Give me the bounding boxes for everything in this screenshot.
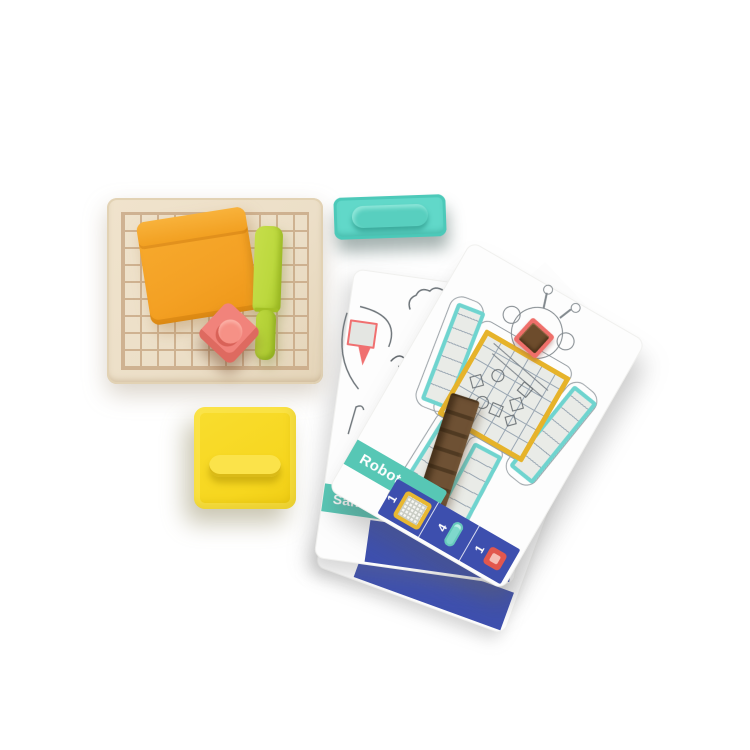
flag-sketch: [347, 319, 378, 349]
cell-shape-diamond: [509, 397, 524, 412]
cell-shape-circle: [489, 367, 507, 385]
teal-bar-stamp: [333, 194, 446, 240]
stamp-knob: [213, 315, 247, 349]
cell-shape-square: [488, 402, 504, 418]
antenna-line-icon: [543, 293, 548, 309]
piece-count: 1: [472, 543, 487, 556]
teal-capsule-stamp-icon: [443, 520, 466, 548]
orange-scraper-tool: [136, 206, 261, 326]
antenna-line-icon: [559, 309, 571, 319]
cell-shape-diamond: [469, 374, 484, 389]
cell-shape-diamond: [505, 414, 517, 426]
piece-count: 1: [385, 493, 400, 506]
piece-count: 4: [434, 521, 449, 534]
teal-stamp-bar-handle: [352, 204, 429, 229]
yellow-square-stamp: [194, 407, 296, 509]
antenna-ball-icon: [569, 301, 583, 315]
yellow-stamp-bar-handle: [209, 455, 281, 477]
cell-shape-square: [517, 381, 534, 398]
sand-play-kit-product-photo: W Sand Castle: [0, 0, 750, 750]
spatula-blade: [252, 226, 283, 313]
